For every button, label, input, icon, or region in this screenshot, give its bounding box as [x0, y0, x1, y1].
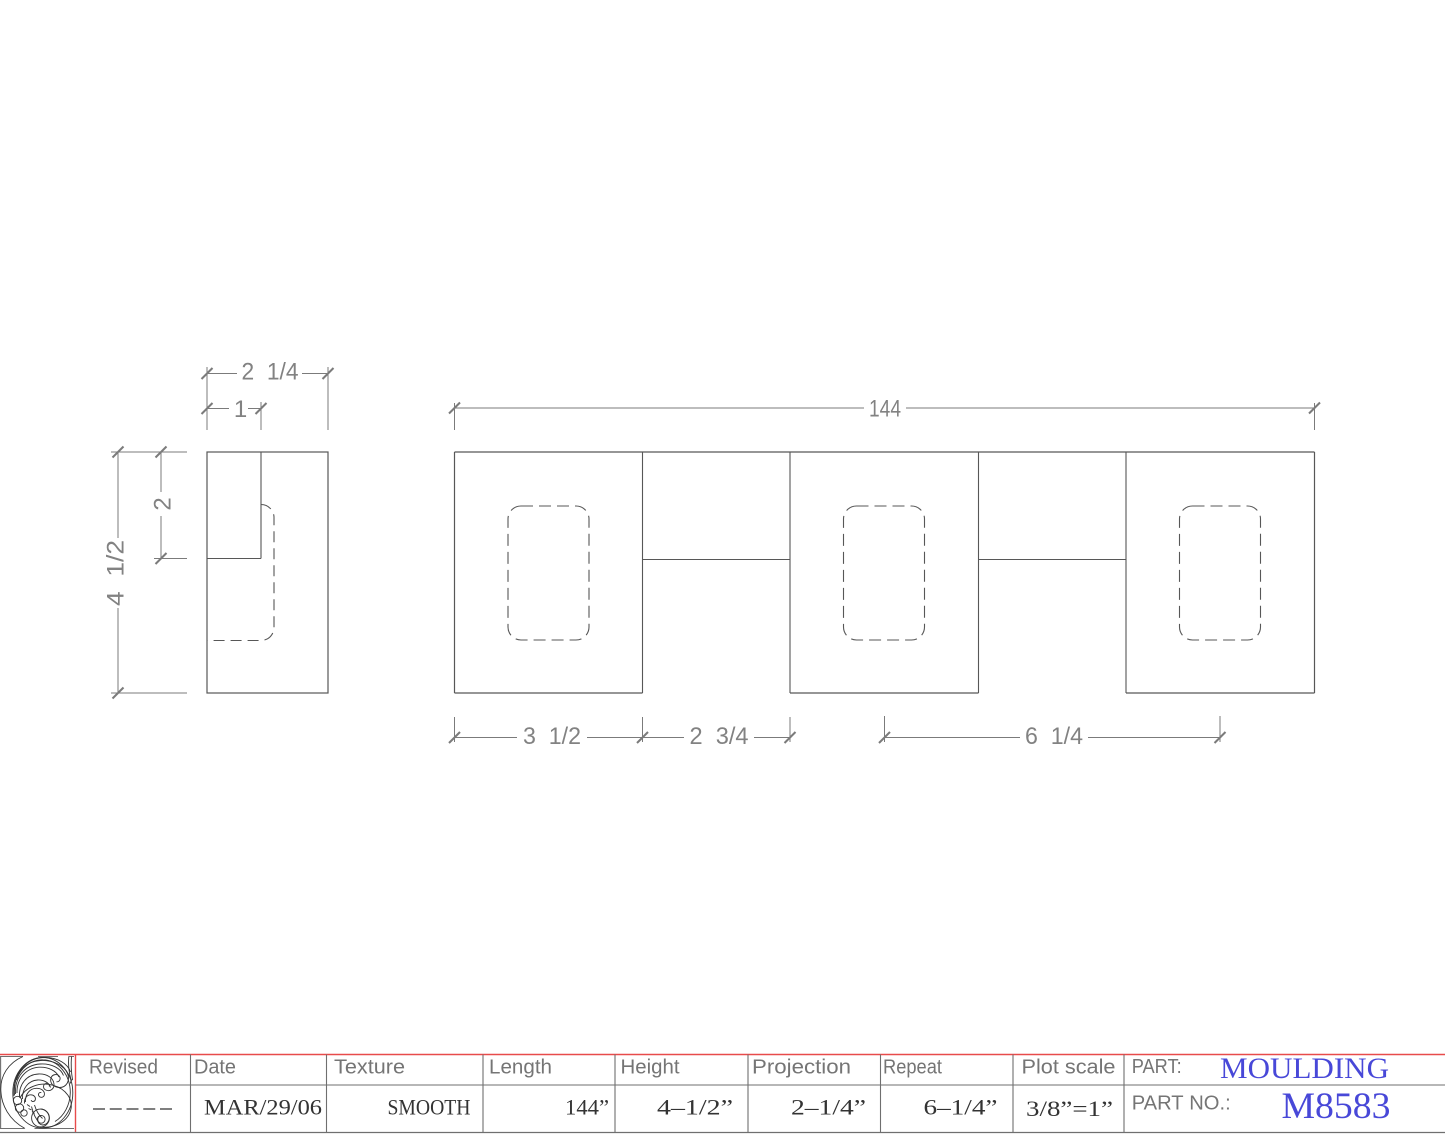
svg-text:PART:: PART: — [1132, 1055, 1182, 1078]
svg-text:Projection: Projection — [752, 1056, 851, 1079]
svg-text:Texture: Texture — [334, 1056, 405, 1079]
svg-text:M8583: M8583 — [1282, 1086, 1391, 1127]
svg-text:2–1/4”: 2–1/4” — [791, 1095, 866, 1120]
svg-text:144”: 144” — [565, 1095, 609, 1120]
svg-text:2 3/4: 2 3/4 — [690, 723, 749, 750]
svg-text:SMOOTH: SMOOTH — [388, 1095, 471, 1120]
svg-text:144: 144 — [869, 396, 901, 423]
svg-text:6 1/4: 6 1/4 — [1025, 723, 1083, 750]
svg-text:Plot scale: Plot scale — [1022, 1056, 1116, 1079]
svg-text:PART NO.:: PART NO.: — [1132, 1091, 1231, 1114]
svg-text:Revised: Revised — [89, 1056, 158, 1079]
svg-text:MOULDING: MOULDING — [1220, 1053, 1389, 1085]
svg-text:Repeat: Repeat — [883, 1056, 942, 1079]
svg-text:Date: Date — [194, 1056, 236, 1079]
svg-text:1: 1 — [234, 396, 247, 423]
svg-text:2 1/4: 2 1/4 — [242, 359, 299, 386]
svg-text:Height: Height — [621, 1056, 680, 1079]
svg-text:6–1/4”: 6–1/4” — [924, 1095, 998, 1120]
svg-text:3 1/2: 3 1/2 — [523, 723, 581, 750]
svg-text:4–1/2”: 4–1/2” — [657, 1095, 733, 1120]
svg-text:Length: Length — [489, 1056, 552, 1079]
svg-text:2: 2 — [150, 497, 177, 510]
svg-text:3/8”=1”: 3/8”=1” — [1026, 1096, 1113, 1121]
svg-text:MAR/29/06: MAR/29/06 — [204, 1095, 322, 1120]
svg-text:4 1/2: 4 1/2 — [103, 540, 130, 606]
